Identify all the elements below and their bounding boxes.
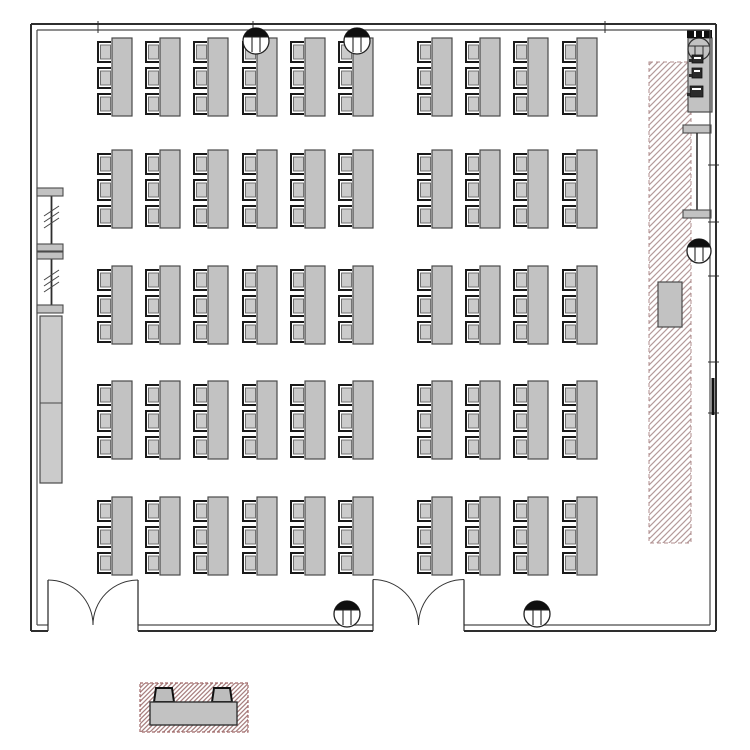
desk-unit [563, 266, 597, 344]
chair-seat [517, 183, 527, 197]
chair-seat [197, 299, 207, 313]
chair-seat [246, 71, 256, 85]
chair-seat [342, 299, 352, 313]
chair [194, 322, 207, 342]
chair-seat [149, 183, 159, 197]
desk-unit [98, 150, 132, 228]
chair [243, 206, 256, 226]
chair-seat [294, 45, 304, 59]
chair [466, 527, 479, 547]
chair [146, 94, 159, 114]
chair-seat [469, 209, 479, 223]
chair-seat [566, 556, 576, 570]
chair [466, 206, 479, 226]
desks-layer [98, 38, 597, 575]
chair [466, 296, 479, 316]
chair [98, 270, 111, 290]
chair-seat [197, 209, 207, 223]
desk-unit [339, 381, 373, 459]
chair [243, 501, 256, 521]
desk-unit [563, 497, 597, 575]
desk-table [480, 38, 500, 116]
chair-seat [421, 273, 431, 287]
chair-seat [197, 440, 207, 454]
desk-unit [418, 150, 452, 228]
chair-seat [566, 299, 576, 313]
chair-seat [517, 157, 527, 171]
desk-table [353, 266, 373, 344]
chair-seat [197, 556, 207, 570]
chair [194, 437, 207, 457]
chair-seat [246, 414, 256, 428]
chair [514, 180, 527, 200]
chair [146, 501, 159, 521]
chair [514, 270, 527, 290]
desk-unit [466, 497, 500, 575]
chair-seat [566, 71, 576, 85]
desk-table [305, 38, 325, 116]
chair-seat [197, 273, 207, 287]
desk-table [257, 381, 277, 459]
chair-seat [469, 530, 479, 544]
chair [514, 322, 527, 342]
chair [291, 322, 304, 342]
chair [418, 270, 431, 290]
chair [98, 180, 111, 200]
desk-table [160, 38, 180, 116]
chair-seat [517, 71, 527, 85]
chair-seat [294, 209, 304, 223]
chair [146, 296, 159, 316]
chair-seat [421, 299, 431, 313]
column-cap [345, 28, 370, 37]
chair-seat [101, 183, 111, 197]
chair [146, 270, 159, 290]
chair [466, 385, 479, 405]
chair [291, 206, 304, 226]
chair-seat [294, 388, 304, 402]
chair-seat [517, 530, 527, 544]
chair-seat [469, 414, 479, 428]
desk-unit [339, 150, 373, 228]
chair-seat [517, 556, 527, 570]
chair [514, 68, 527, 88]
chair [291, 270, 304, 290]
chair [194, 42, 207, 62]
chair-seat [566, 414, 576, 428]
chair [291, 42, 304, 62]
chair [291, 385, 304, 405]
appliance-body [692, 68, 702, 78]
desk-table [432, 497, 452, 575]
chair-seat [342, 388, 352, 402]
chair-seat [197, 325, 207, 339]
desk-unit [339, 497, 373, 575]
chair [339, 154, 352, 174]
chair [466, 322, 479, 342]
chair-seat [101, 209, 111, 223]
desk-table [257, 266, 277, 344]
chair-seat [469, 556, 479, 570]
desk-table [160, 381, 180, 459]
column-cap [335, 601, 360, 610]
chair-seat [421, 504, 431, 518]
chair [98, 411, 111, 431]
desk-table [160, 150, 180, 228]
chair [146, 180, 159, 200]
chair-seat [342, 556, 352, 570]
chair-seat [149, 273, 159, 287]
door-swing-arc [93, 580, 138, 625]
chair [466, 411, 479, 431]
chair-seat [566, 45, 576, 59]
desk-unit [243, 497, 277, 575]
chair [418, 527, 431, 547]
chair-seat [101, 325, 111, 339]
chair-seat [469, 299, 479, 313]
desk-unit [194, 150, 228, 228]
chair-seat [149, 556, 159, 570]
chair [514, 437, 527, 457]
desk-unit [514, 497, 548, 575]
chair [243, 154, 256, 174]
chair [194, 68, 207, 88]
desk-unit [146, 38, 180, 116]
chair [291, 527, 304, 547]
chair [563, 322, 576, 342]
chair-seat [149, 414, 159, 428]
desk-unit [418, 381, 452, 459]
chair-seat [469, 45, 479, 59]
desk-table [577, 266, 597, 344]
shelf-bar [683, 210, 711, 218]
chair-seat [421, 414, 431, 428]
floor-plan-drawing [0, 0, 750, 750]
chair [194, 501, 207, 521]
column-symbol [687, 239, 711, 263]
desk-table [432, 381, 452, 459]
chair-seat [342, 530, 352, 544]
chair-seat [294, 530, 304, 544]
chair-seat [149, 299, 159, 313]
chair-seat [342, 414, 352, 428]
chair-seat [342, 504, 352, 518]
chair [418, 553, 431, 573]
chair-seat [149, 530, 159, 544]
desk-table [112, 381, 132, 459]
chair [243, 296, 256, 316]
chair [98, 322, 111, 342]
chair-seat [294, 414, 304, 428]
chair [194, 206, 207, 226]
chair-seat [294, 97, 304, 111]
desk-table [160, 497, 180, 575]
desk-table [432, 150, 452, 228]
chair [418, 411, 431, 431]
chair-seat [469, 157, 479, 171]
chair-seat [294, 273, 304, 287]
desk-unit [146, 150, 180, 228]
chair-seat [101, 504, 111, 518]
chair-seat [197, 530, 207, 544]
chair [563, 527, 576, 547]
appliance-knob [689, 74, 692, 77]
shelf-bar [683, 125, 711, 133]
chair-seat [246, 299, 256, 313]
chair [339, 553, 352, 573]
desk-unit [98, 497, 132, 575]
desk-unit [194, 381, 228, 459]
desk-unit [514, 381, 548, 459]
chair [418, 180, 431, 200]
chair [339, 437, 352, 457]
chair [146, 385, 159, 405]
chair-seat [101, 97, 111, 111]
chair [98, 296, 111, 316]
chair [418, 322, 431, 342]
chair [291, 411, 304, 431]
chair [243, 322, 256, 342]
chair-seat [566, 183, 576, 197]
desk-unit [339, 266, 373, 344]
chair-seat [566, 209, 576, 223]
door-swing-arc [419, 580, 465, 626]
chair [243, 180, 256, 200]
desk-unit [418, 497, 452, 575]
chair-seat [149, 325, 159, 339]
chair [466, 68, 479, 88]
chair-seat [294, 157, 304, 171]
chair-seat [246, 388, 256, 402]
chair [563, 68, 576, 88]
desk-unit [514, 266, 548, 344]
chair [194, 385, 207, 405]
chair-seat [294, 556, 304, 570]
chair-seat [246, 325, 256, 339]
desk-unit [563, 381, 597, 459]
chair-seat [197, 45, 207, 59]
desk-unit [146, 381, 180, 459]
chair [466, 270, 479, 290]
chair [98, 68, 111, 88]
legend-chair [154, 688, 174, 702]
desk-table [112, 266, 132, 344]
chair-seat [246, 530, 256, 544]
cabinet [40, 316, 62, 483]
vent-slit [694, 31, 696, 37]
chair-seat [469, 388, 479, 402]
chair-seat [246, 440, 256, 454]
chair [98, 385, 111, 405]
chair-seat [101, 414, 111, 428]
chair-seat [342, 157, 352, 171]
chair [146, 553, 159, 573]
chair [563, 270, 576, 290]
chair [194, 553, 207, 573]
desk-table [112, 150, 132, 228]
chair [146, 322, 159, 342]
column-symbol [344, 28, 370, 54]
chair-seat [149, 504, 159, 518]
chair-seat [101, 45, 111, 59]
chair-seat [294, 325, 304, 339]
chair-seat [294, 299, 304, 313]
desk-unit [466, 266, 500, 344]
appliance-detail [692, 88, 701, 90]
chair-seat [342, 440, 352, 454]
desk-unit [146, 266, 180, 344]
chair-seat [342, 325, 352, 339]
chair [291, 553, 304, 573]
vent-slit [702, 31, 704, 37]
floor-plan-page [0, 0, 750, 750]
chair-seat [149, 157, 159, 171]
chair-seat [469, 183, 479, 197]
chair-seat [469, 71, 479, 85]
chair-seat [246, 183, 256, 197]
desk-unit [514, 38, 548, 116]
chair [98, 154, 111, 174]
chair-seat [469, 440, 479, 454]
desk-unit [291, 381, 325, 459]
chair [418, 154, 431, 174]
desk-table [257, 150, 277, 228]
chair [466, 553, 479, 573]
chair-seat [566, 325, 576, 339]
chair [466, 437, 479, 457]
desk-unit [291, 38, 325, 116]
legend-table [150, 702, 237, 725]
chair-seat [197, 157, 207, 171]
chair-seat [294, 71, 304, 85]
desk-table [528, 266, 548, 344]
column-symbol [524, 601, 550, 627]
chair-seat [149, 440, 159, 454]
walls-layer [31, 21, 719, 631]
chair [339, 270, 352, 290]
chair-seat [197, 183, 207, 197]
appliance-knob [689, 59, 692, 62]
desk-unit [466, 381, 500, 459]
chair-seat [342, 209, 352, 223]
chair [146, 42, 159, 62]
chair-seat [246, 556, 256, 570]
desk-unit [98, 381, 132, 459]
chair-seat [566, 530, 576, 544]
desk-unit [243, 381, 277, 459]
door-swing-arc [48, 580, 93, 625]
desk-unit [146, 497, 180, 575]
desk-table [353, 497, 373, 575]
chair [243, 527, 256, 547]
vent-bar [687, 30, 712, 38]
chair [146, 527, 159, 547]
chair [146, 206, 159, 226]
chair-seat [246, 209, 256, 223]
desk-unit [514, 150, 548, 228]
legend-chair [212, 688, 232, 702]
chair [98, 553, 111, 573]
chair [563, 411, 576, 431]
chair-seat [421, 183, 431, 197]
chair [194, 94, 207, 114]
desk-unit [194, 497, 228, 575]
desk-table [208, 150, 228, 228]
chair-seat [246, 97, 256, 111]
chair [243, 437, 256, 457]
desk-table [577, 381, 597, 459]
chair [514, 411, 527, 431]
desk-table [208, 38, 228, 116]
desk-unit [418, 266, 452, 344]
chair-seat [101, 556, 111, 570]
chair-seat [342, 183, 352, 197]
desk-table [305, 266, 325, 344]
chair-seat [517, 45, 527, 59]
chair [194, 411, 207, 431]
chair-seat [469, 273, 479, 287]
chair-seat [421, 530, 431, 544]
chair [291, 94, 304, 114]
chair [339, 94, 352, 114]
chair [563, 385, 576, 405]
chair [194, 527, 207, 547]
chair [194, 154, 207, 174]
desk-table [577, 150, 597, 228]
desk-table [432, 38, 452, 116]
chair [291, 68, 304, 88]
chair-seat [246, 157, 256, 171]
chair [291, 501, 304, 521]
chair [98, 94, 111, 114]
chair-seat [197, 97, 207, 111]
appliance-knob [687, 93, 690, 96]
chair [339, 180, 352, 200]
door-swing-arc [373, 580, 419, 626]
desk-unit [98, 266, 132, 344]
desk-unit [194, 266, 228, 344]
partition-end-bar [37, 252, 63, 259]
chair-seat [421, 325, 431, 339]
chair [514, 501, 527, 521]
desk-unit [466, 38, 500, 116]
partition-end-bar [37, 188, 63, 196]
desk-unit [243, 150, 277, 228]
chair-seat [517, 299, 527, 313]
desk-unit [291, 266, 325, 344]
chair-seat [294, 504, 304, 518]
chair [563, 94, 576, 114]
chair [291, 180, 304, 200]
desk-table [353, 381, 373, 459]
chair [339, 527, 352, 547]
chair [514, 154, 527, 174]
chair [146, 437, 159, 457]
desk-table [305, 381, 325, 459]
desk-table [577, 38, 597, 116]
chair [514, 385, 527, 405]
chair [339, 206, 352, 226]
chair-seat [149, 388, 159, 402]
chair-seat [246, 273, 256, 287]
chair [563, 501, 576, 521]
chair-seat [101, 440, 111, 454]
chair [339, 296, 352, 316]
chair [563, 553, 576, 573]
chair-seat [197, 388, 207, 402]
chair-seat [197, 71, 207, 85]
chair-seat [517, 273, 527, 287]
